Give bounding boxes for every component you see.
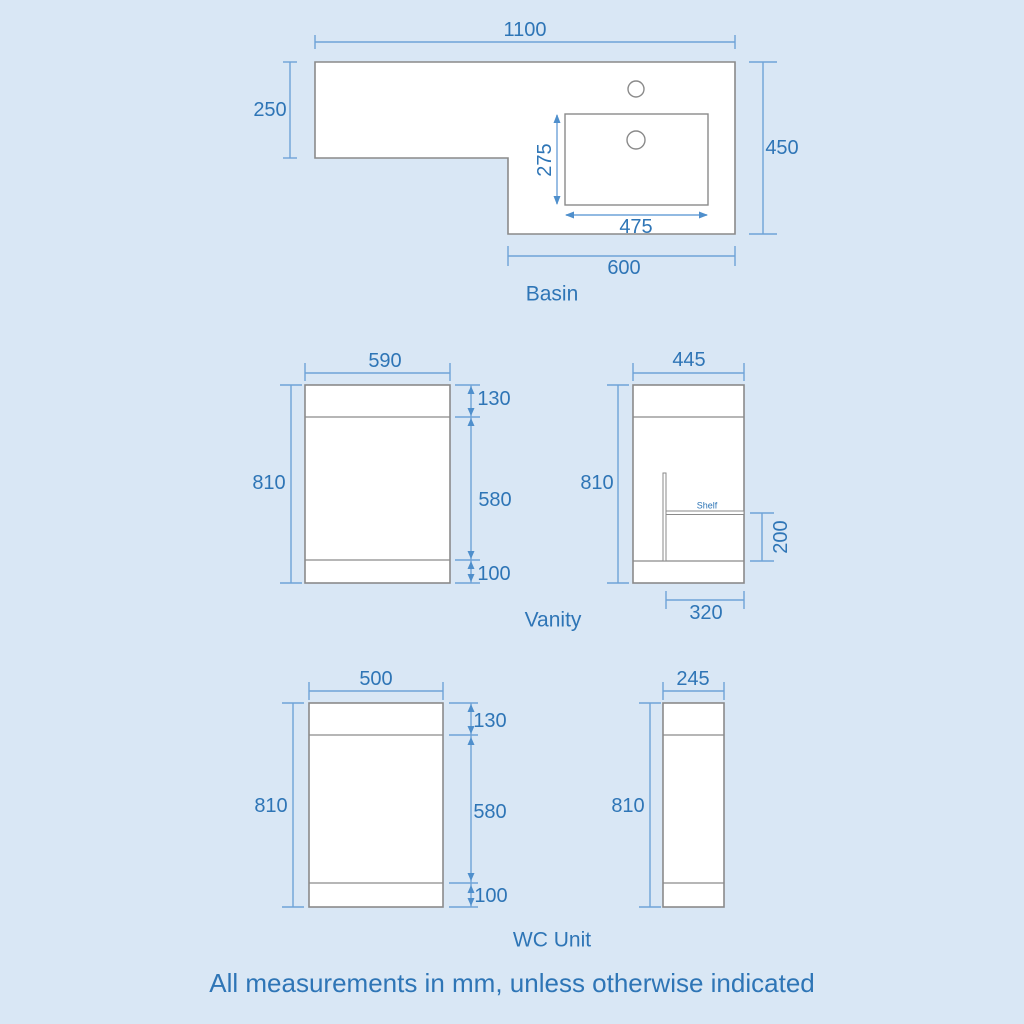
diagram-geometry: [0, 0, 1024, 1024]
diagram-canvas: 1100 250 450 275 475 600 Basin 590 810 1…: [0, 0, 1024, 1024]
vanity-shelf-label: Shelf: [697, 502, 718, 511]
vanity-front-dim-width: 590: [368, 351, 401, 371]
basin-dim-sink-depth: 275: [535, 143, 555, 176]
wc-front-drawing: [309, 703, 443, 907]
dim-arrow-up: [468, 561, 475, 569]
dim-arrow-up: [468, 386, 475, 394]
dim-arrow-up: [468, 418, 475, 426]
wc-side-drawing: [663, 703, 724, 907]
basin-dim-left-height: 250: [253, 100, 286, 120]
vanity-side-back-panel: [663, 473, 666, 561]
wc-front-dim-bottom: 100: [474, 886, 507, 906]
basin-dim-top-width: 1100: [503, 20, 546, 40]
basin-dim-right-height: 450: [765, 138, 798, 158]
wc-front-dim-middle: 580: [473, 802, 506, 822]
vanity-front-dim-bottom: 100: [477, 564, 510, 584]
wc-front-dim-width: 500: [359, 669, 392, 689]
vanity-side-drawing: [633, 385, 744, 583]
wc-side-dim-height: 810: [611, 796, 644, 816]
vanity-label: Vanity: [525, 610, 582, 631]
dim-arrow-down: [468, 574, 475, 582]
wc-front-dim-top: 130: [473, 711, 506, 731]
vanity-side-shelf: [666, 511, 744, 515]
vanity-side-dim-shelf-height: 200: [771, 520, 791, 553]
vanity-front-dim-middle: 580: [478, 490, 511, 510]
dim-arrow-down: [468, 551, 475, 559]
basin-waste-hole-icon: [627, 131, 645, 149]
dim-arrow-up: [468, 737, 475, 745]
vanity-front-outline: [305, 385, 450, 583]
basin-dim-bottom-width: 600: [607, 258, 640, 278]
vanity-front-dim-height: 810: [252, 473, 285, 493]
basin-drawing: [315, 62, 735, 234]
dim-arrow-down: [468, 408, 475, 416]
basin-label: Basin: [526, 284, 579, 305]
vanity-side-dim-shelf-depth: 320: [689, 603, 722, 623]
wc-side-dim-width: 245: [676, 669, 709, 689]
wc-front-dim-height: 810: [254, 796, 287, 816]
wc-unit-label: WC Unit: [513, 930, 591, 951]
measurements-note: All measurements in mm, unless otherwise…: [209, 970, 814, 996]
wc-front-outline: [309, 703, 443, 907]
vanity-front-dim-top: 130: [477, 389, 510, 409]
vanity-side-outline: [633, 385, 744, 583]
basin-sink-outline: [565, 114, 708, 205]
basin-dim-sink-width: 475: [619, 217, 652, 237]
vanity-front-drawing: [305, 385, 450, 583]
basin-tap-hole-icon: [628, 81, 644, 97]
vanity-side-dim-height: 810: [580, 473, 613, 493]
wc-side-outline: [663, 703, 724, 907]
dim-arrow-down: [468, 873, 475, 881]
vanity-side-dim-width: 445: [672, 350, 705, 370]
